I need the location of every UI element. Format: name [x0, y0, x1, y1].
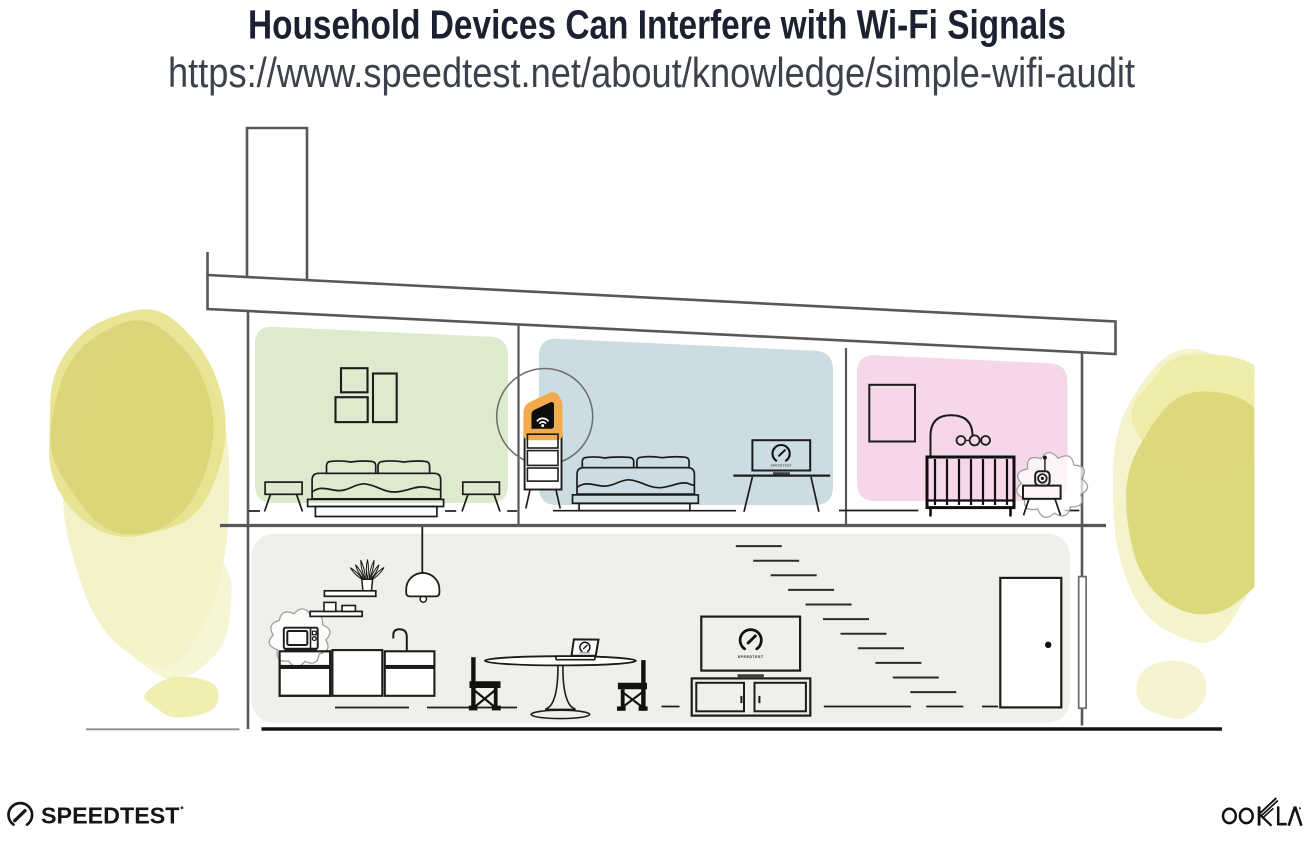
svg-text:SPEEDTEST: SPEEDTEST — [738, 655, 764, 659]
svg-text:Household Devices Can Interfer: Household Devices Can Interfere with Wi-… — [248, 2, 1066, 48]
svg-text:SPEEDTEST: SPEEDTEST — [41, 803, 180, 829]
svg-text:SPEEDTEST: SPEEDTEST — [771, 463, 792, 467]
svg-text:https://www.speedtest.net/abou: https://www.speedtest.net/about/knowledg… — [168, 49, 1135, 96]
